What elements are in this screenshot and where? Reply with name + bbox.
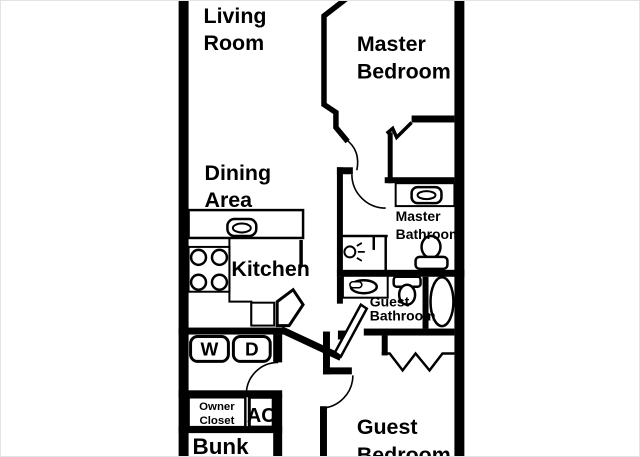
living-room-label: Room [204,31,265,55]
master-closet-west-wall [388,132,393,183]
master-bath-toilet-tank [416,257,448,269]
laundry-door-arc [246,362,278,394]
kitchen-sink-basin [233,224,251,233]
stove-burner-icon [212,275,227,290]
master-bedroom-bottom-wall [412,115,455,122]
master-bath-door-arc [352,174,386,208]
master-bedroom-door-arc [346,139,358,170]
dining-area-label: Area [205,188,254,212]
diagonal-hall-wall [281,330,341,358]
left-wall [179,1,189,456]
master-bedroom-label: Bedroom [357,60,451,84]
guest-bedroom-label: Bedroom [357,443,451,456]
kitchen-cabinet-line [229,238,251,326]
washer-label: W [201,339,219,360]
owner-closet-label: Closet [199,415,234,427]
floor-plan-page: Living Room Master Bedroom Dining Area K… [0,0,640,457]
master-bedroom-label: Master [357,32,426,56]
master-bedroom-west-wall [324,1,346,139]
floor-plan: Living Room Master Bedroom Dining Area K… [1,1,639,456]
dryer-label: D [245,339,259,360]
ac-label: AC [247,405,276,427]
shower-light-rays [357,243,365,261]
owner-closet-label: Owner [199,401,235,413]
master-bathroom-label: Master [396,208,441,224]
bunk-label: Bunk [193,434,250,456]
guest-bedroom-door-arc [320,375,353,408]
shower-light-icon [344,246,355,257]
stove-burner-icon [191,275,206,290]
kitchen-base-cabinet [251,303,274,326]
guest-bath-faucet [350,282,362,288]
master-bathroom-label: Bathroom [396,226,462,242]
laundry-east-wall-upper [273,335,282,363]
bathroom-west-wall [337,167,343,277]
kitchen-door-leaf [277,290,303,326]
living-room-label: Living [204,4,267,28]
guest-bedroom-label: Guest [357,415,418,439]
master-bath-sink-basin [418,191,436,199]
guest-bedroom-west-wall-lower [320,406,327,456]
guest-bedroom-door-jamb [323,367,352,374]
guest-bath-bottom-wall [364,329,455,336]
stove-burner-icon [191,250,206,265]
bifold-closet-doors-icon [382,353,455,370]
kitchen-bottom-wall [179,328,284,335]
guest-bathroom-label: Bathroom [370,308,436,324]
dining-area-label: Dining [205,161,272,185]
kitchen-label: Kitchen [231,257,309,281]
stove-burner-icon [212,250,227,265]
